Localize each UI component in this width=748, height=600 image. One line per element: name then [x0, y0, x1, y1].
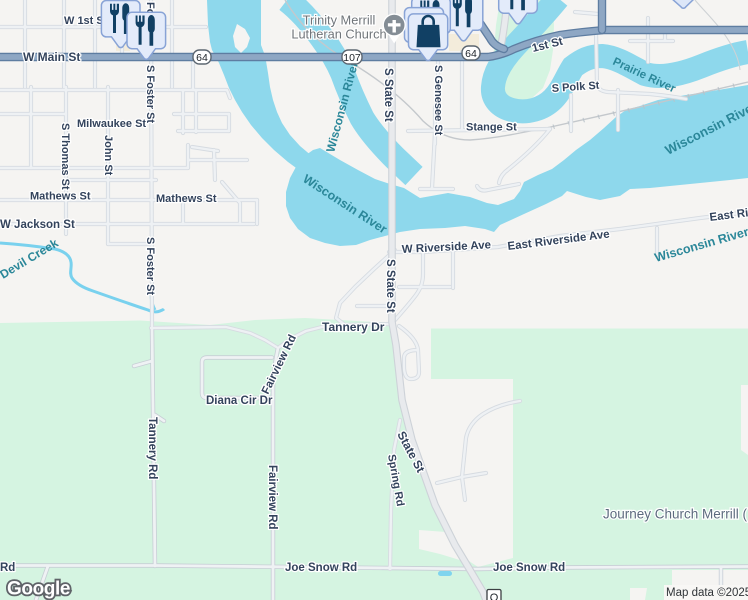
svg-text:S State St: S State St — [384, 259, 396, 313]
svg-text:107: 107 — [343, 52, 361, 64]
svg-text:Diana Cir Dr: Diana Cir Dr — [206, 395, 273, 407]
svg-text:Milwaukee St: Milwaukee St — [77, 118, 146, 130]
svg-text:W Jackson St: W Jackson St — [0, 219, 75, 231]
svg-text:S Thomas St: S Thomas St — [59, 123, 71, 190]
svg-text:W Main St: W Main St — [23, 50, 80, 64]
svg-text:Q: Q — [490, 592, 499, 600]
svg-text:S Foster St: S Foster St — [144, 65, 156, 123]
svg-text:Mathews St: Mathews St — [30, 191, 91, 203]
svg-text:John St: John St — [102, 135, 114, 176]
svg-text:Fairview Rd: Fairview Rd — [266, 465, 278, 530]
svg-text:64: 64 — [465, 48, 477, 60]
svg-text:S State St: S State St — [382, 68, 394, 122]
svg-text:Rd: Rd — [0, 562, 15, 574]
svg-text:Trinity Merrill: Trinity Merrill — [303, 13, 376, 28]
svg-text:64: 64 — [196, 52, 208, 64]
svg-text:W 1st S: W 1st S — [64, 15, 104, 27]
svg-text:S Genesee St: S Genesee St — [432, 65, 444, 136]
svg-text:Map data ©2025: Map data ©2025 — [666, 587, 748, 599]
svg-text:Joe Snow Rd: Joe Snow Rd — [285, 562, 357, 574]
svg-text:Stange St: Stange St — [466, 122, 517, 134]
svg-text:Journey Church Merrill (: Journey Church Merrill ( — [603, 507, 748, 522]
svg-text:S Foster St: S Foster St — [144, 237, 156, 295]
svg-text:Mathews St: Mathews St — [156, 193, 217, 205]
svg-text:Tannery Dr: Tannery Dr — [322, 320, 385, 334]
svg-text:Google: Google — [7, 579, 70, 600]
svg-text:Lutheran Church: Lutheran Church — [291, 27, 386, 42]
svg-text:Tannery Rd: Tannery Rd — [146, 417, 158, 479]
svg-text:Joe Snow Rd: Joe Snow Rd — [493, 562, 565, 574]
